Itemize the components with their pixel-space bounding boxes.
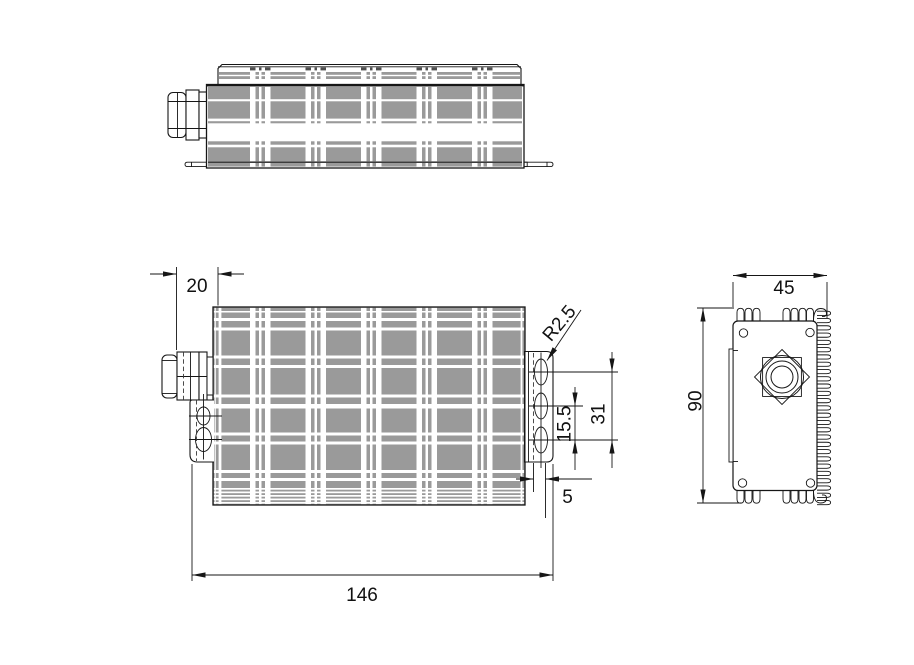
side-fin-loop <box>817 355 831 359</box>
lid-stripe-gap <box>481 72 484 80</box>
crosscut-stripe <box>306 308 312 504</box>
top-fin-loop <box>791 308 798 321</box>
top-fin-loop <box>783 308 790 321</box>
lid-dash <box>481 67 484 70</box>
top-fin-loop <box>745 308 752 321</box>
lid-dash <box>472 67 478 70</box>
bottom-fin-loop <box>745 491 752 504</box>
side-fin-loop <box>817 362 831 366</box>
crosscut-stripe <box>417 308 423 504</box>
dim-label-146: 146 <box>346 585 378 606</box>
lid-dash <box>370 67 373 70</box>
crosscut-stripe <box>250 308 256 504</box>
crosscut-stripe <box>487 87 493 167</box>
crosscut-stripe <box>432 308 438 504</box>
top-view <box>162 307 553 505</box>
lid-dash <box>487 67 493 70</box>
dim-15-5: 15.5 <box>555 387 578 470</box>
crosscut-stripe <box>250 87 256 167</box>
dim-label-90: 90 <box>686 390 707 411</box>
edge-fin-stripe <box>215 308 216 504</box>
top-fin-loop <box>737 308 744 321</box>
side-fin-loop <box>817 377 831 381</box>
front-view <box>168 65 553 169</box>
dim-label-r2-5: R2.5 <box>539 301 581 345</box>
bottom-fin-loop <box>791 491 798 504</box>
side-fin-loop <box>817 420 831 424</box>
crosscut-stripe <box>487 308 493 504</box>
side-fin-loop <box>817 457 831 461</box>
cable-gland-top <box>162 352 213 400</box>
crosscut-stripe <box>315 308 318 504</box>
lid-stripe-gap <box>315 72 318 80</box>
crosscut-stripe <box>432 87 438 167</box>
crosscut-stripe <box>481 308 484 504</box>
side-fin-loop <box>817 428 831 432</box>
crosscut-stripe <box>370 87 373 167</box>
side-fin-loop <box>817 479 831 483</box>
dim-label-31: 31 <box>589 403 610 424</box>
crosscut-stripe <box>321 87 327 167</box>
side-fin-loop <box>817 435 831 439</box>
dim-label-15-5: 15.5 <box>555 406 576 443</box>
dim-label-20: 20 <box>186 276 207 297</box>
drawing-svg: 20 146 45 90 <box>0 0 914 665</box>
side-fin-loop <box>817 340 831 344</box>
side-fin-loop <box>817 311 831 315</box>
side-fin-loop <box>817 450 831 454</box>
front-lower-shadow-line <box>208 161 522 163</box>
lid-dash <box>265 67 271 70</box>
crosscut-stripe <box>472 308 478 504</box>
lid-stripe-gap <box>472 72 478 80</box>
lid-stripe-gap <box>370 72 373 80</box>
flange-left-front <box>185 162 206 166</box>
corner-fin-curl <box>814 309 827 322</box>
dim-45: 45 <box>733 273 827 318</box>
lid-stripe-gap <box>250 72 256 80</box>
lid-stripe-gap <box>265 72 271 80</box>
lid-dash <box>250 67 256 70</box>
lid-stripe-gap <box>432 72 438 80</box>
bottom-fin-loop <box>799 491 806 504</box>
crosscut-stripe <box>265 87 271 167</box>
flange-right-front <box>524 162 553 166</box>
dim-label-45: 45 <box>773 278 794 299</box>
side-fin-loop <box>817 486 831 490</box>
side-fin-loop <box>817 391 831 395</box>
crosscut-stripe <box>306 87 312 167</box>
side-fin-loop <box>817 348 831 352</box>
corner-fin-curl <box>814 491 827 504</box>
lid-dash <box>306 67 312 70</box>
mount-bracket-right <box>525 352 554 469</box>
side-view <box>729 308 831 504</box>
crosscut-stripe <box>265 308 271 504</box>
crosscut-stripe <box>259 87 262 167</box>
dim-5: 5 <box>516 463 592 518</box>
edge-fin-stripe <box>521 308 523 504</box>
lid-stripe-gap <box>376 72 382 80</box>
crosscut-stripe <box>321 308 327 504</box>
crosscut-stripe <box>376 308 382 504</box>
side-fin-loop <box>817 471 831 475</box>
top-fin-loop <box>753 308 760 321</box>
top-fin-loop <box>799 308 806 321</box>
crosscut-stripe <box>361 308 367 504</box>
crosscut-stripe <box>417 87 423 167</box>
crosscut-stripe <box>370 308 373 504</box>
crosscut-stripe <box>426 308 429 504</box>
end-plate <box>733 321 817 491</box>
lid-dash <box>321 67 327 70</box>
lid-stripe-gap <box>306 72 312 80</box>
bottom-fin-loop <box>807 491 814 504</box>
side-fin-loop <box>817 464 831 468</box>
dim-label-5: 5 <box>562 487 573 508</box>
crosscut-stripe <box>481 87 484 167</box>
lid-dash <box>426 67 429 70</box>
side-fin-loop <box>817 406 831 410</box>
side-fin-loop <box>817 442 831 446</box>
crosscut-stripe <box>259 308 262 504</box>
crosscut-stripe <box>376 87 382 167</box>
lid-stripe-gap <box>417 72 423 80</box>
lid-stripe-gap <box>321 72 327 80</box>
lid-dash <box>361 67 367 70</box>
bottom-fin-loop <box>737 491 744 504</box>
lid-stripe-gap <box>361 72 367 80</box>
dim-31: 31 <box>589 352 615 468</box>
lid-dash <box>259 67 262 70</box>
side-fin-loop <box>817 413 831 417</box>
lid-stripe-gap <box>487 72 493 80</box>
lid-stripe-gap <box>426 72 429 80</box>
lid-dash <box>315 67 318 70</box>
side-fin-loop <box>817 326 831 330</box>
crosscut-stripe <box>426 87 429 167</box>
crosscut-stripe <box>315 87 318 167</box>
top-fin-loop <box>807 308 814 321</box>
crosscut-stripe <box>361 87 367 167</box>
lid-dash <box>376 67 382 70</box>
crosscut-stripe <box>472 87 478 167</box>
technical-drawing-page: 20 146 45 90 <box>0 0 914 665</box>
side-fin-loop <box>817 369 831 373</box>
bottom-fin-loop <box>753 491 760 504</box>
lid-dash <box>417 67 423 70</box>
side-fin-loop <box>817 399 831 403</box>
edge-fin-stripe <box>219 308 222 504</box>
cable-gland-side <box>168 90 207 140</box>
side-fin-loop <box>817 384 831 388</box>
lid-dash <box>432 67 438 70</box>
side-fin-loop <box>817 318 831 322</box>
bottom-fin-loop <box>783 491 790 504</box>
lid-stripe-gap <box>259 72 262 80</box>
side-fin-loop <box>817 333 831 337</box>
